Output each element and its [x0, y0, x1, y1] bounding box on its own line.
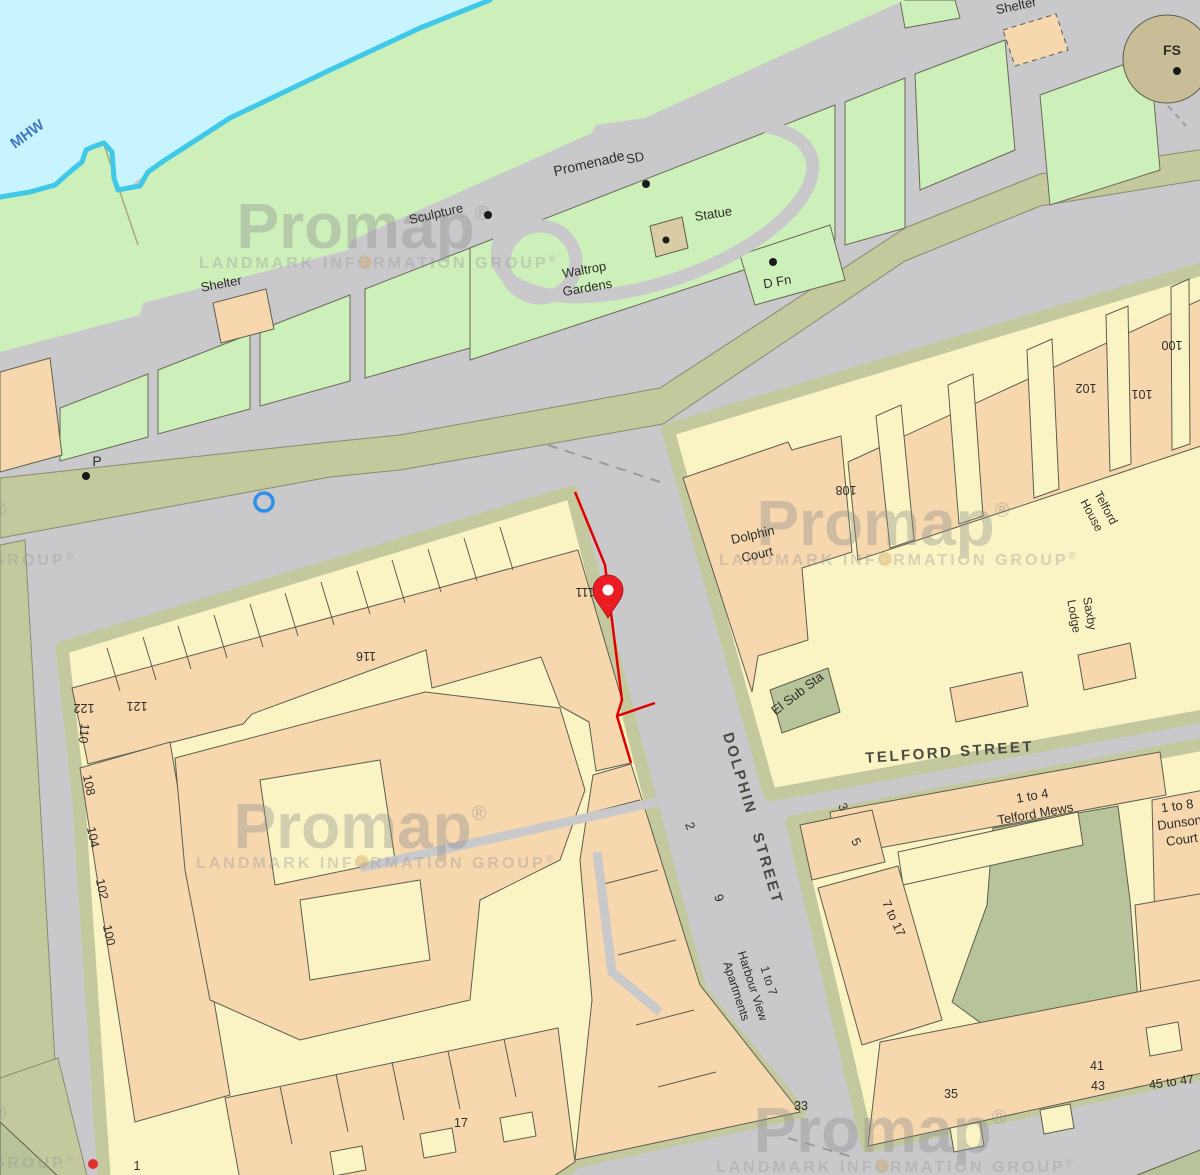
- house-number: 121: [127, 699, 148, 713]
- building-bump: [420, 1128, 456, 1158]
- house-number: 122: [74, 701, 95, 715]
- house-number: 110: [76, 723, 92, 744]
- building-bump: [1040, 1104, 1074, 1134]
- house-number: 116: [356, 649, 376, 663]
- house-number: 111: [575, 585, 594, 599]
- house-number: 1: [134, 1159, 141, 1173]
- building-bump: [500, 1112, 536, 1142]
- house-number: 35: [944, 1087, 958, 1101]
- dfn-dot-icon: [769, 258, 777, 266]
- statue-dot-icon: [663, 237, 670, 244]
- sd-dot-icon: [642, 180, 650, 188]
- fs-dot-icon: [1173, 67, 1181, 75]
- sculpture-dot-icon: [484, 211, 492, 219]
- house-number: 108: [836, 483, 857, 497]
- house-number: 101: [1132, 387, 1153, 401]
- house-number: 102: [1076, 381, 1097, 395]
- terrace-gap: [1171, 279, 1190, 450]
- house-number: 43: [1091, 1079, 1105, 1093]
- garden-plot: [845, 78, 905, 245]
- house-number: 100: [1162, 338, 1183, 352]
- house-number: 33: [794, 1099, 808, 1113]
- promap-map: Promap® LANDMARK INFORMATION GROUP®: [0, 0, 1200, 1175]
- house-number: 41: [1090, 1059, 1104, 1073]
- map-canvas: Promap® LANDMARK INFORMATION GROUP®: [0, 0, 1200, 1175]
- p-label: P: [92, 453, 101, 469]
- building-bump: [1146, 1022, 1182, 1056]
- red-dot-marker: [88, 1159, 98, 1169]
- fs-label: FS: [1163, 42, 1181, 58]
- p-dot-icon: [82, 472, 90, 480]
- house-number: 17: [454, 1116, 468, 1130]
- terrace-gap: [1106, 306, 1131, 471]
